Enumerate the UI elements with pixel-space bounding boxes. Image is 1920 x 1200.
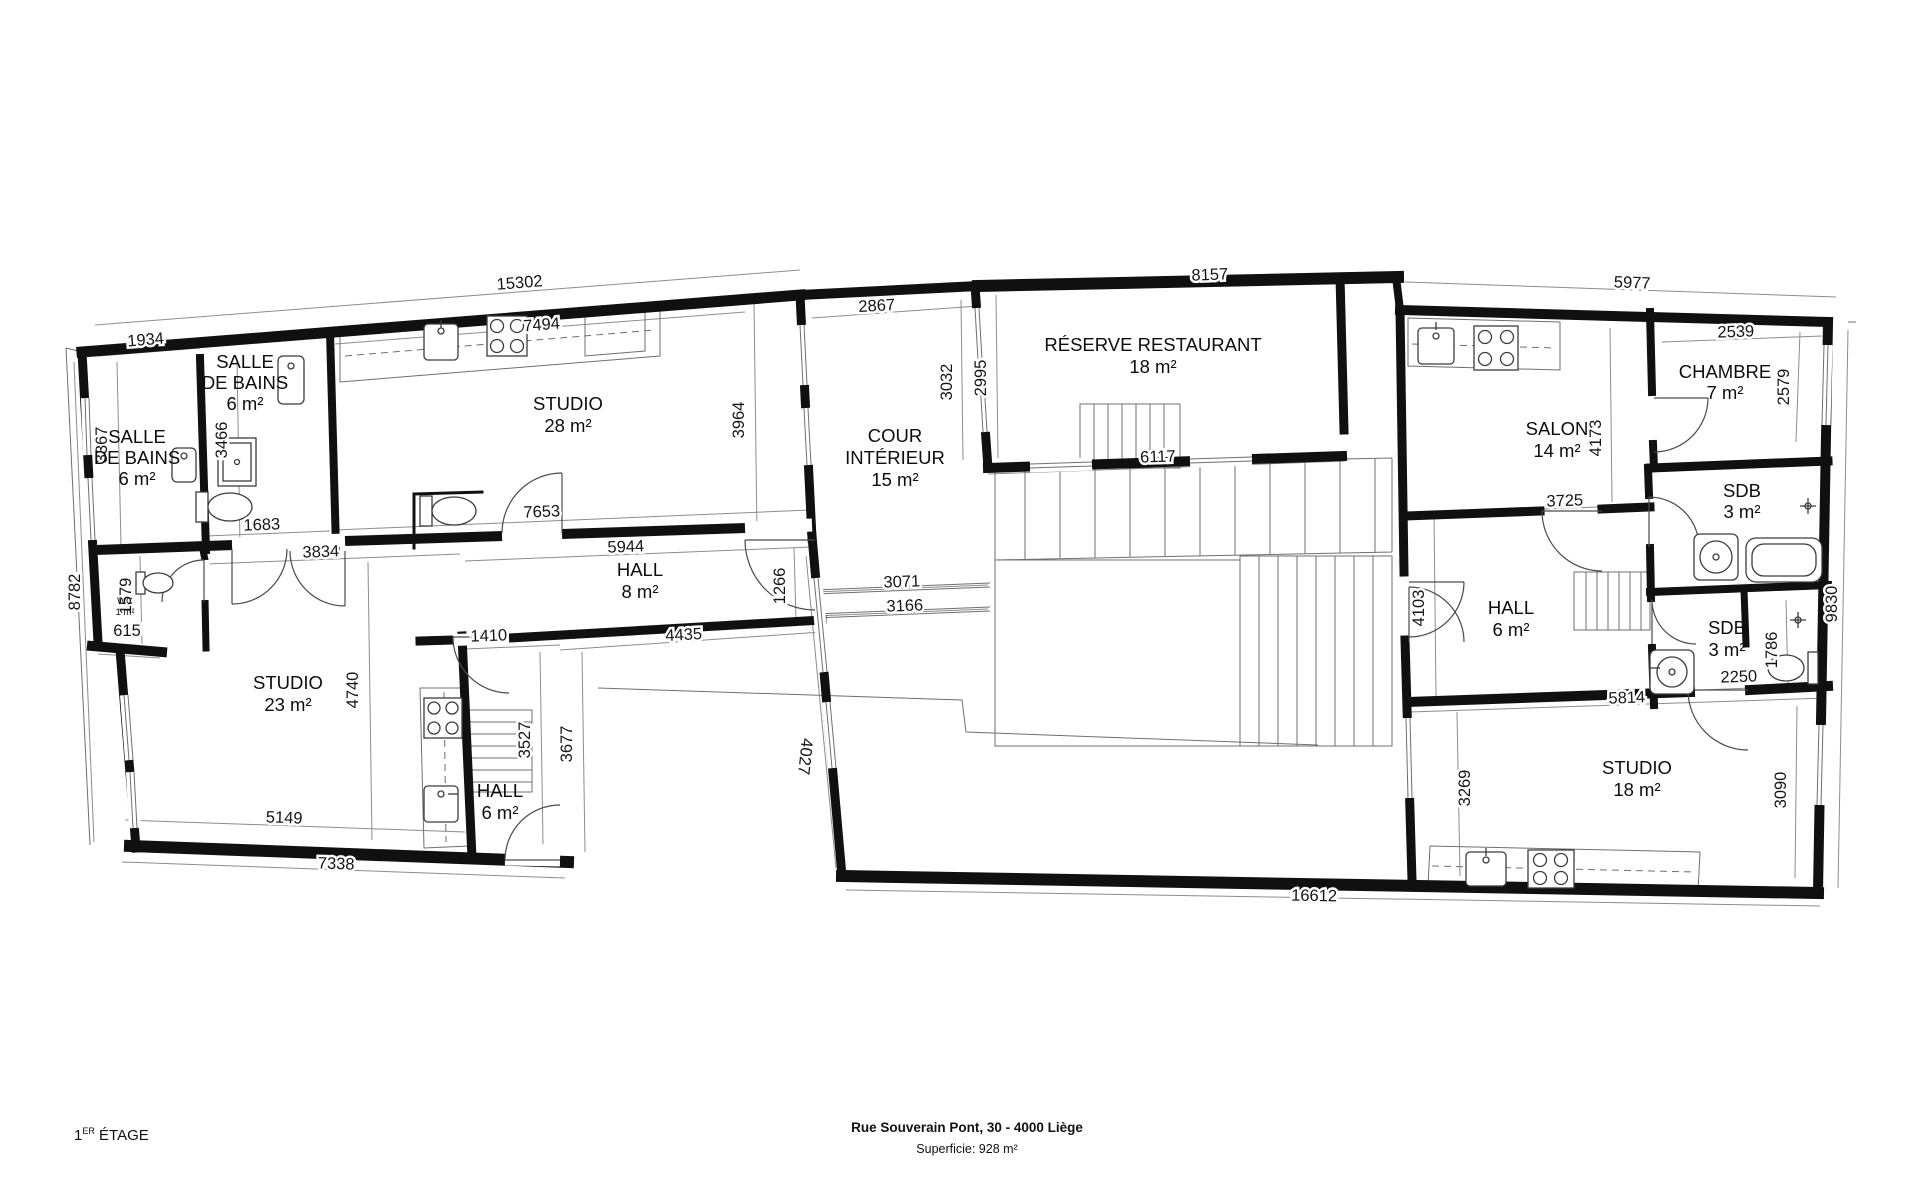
window xyxy=(85,398,91,455)
svg-text:6 m²: 6 m² xyxy=(1493,619,1530,640)
door-bath-left xyxy=(232,549,287,604)
dim-label: 5814 xyxy=(1608,688,1645,707)
dim-label: 3964 xyxy=(730,402,748,439)
stove-studio18 xyxy=(1528,850,1574,888)
dim-label: 4740 xyxy=(344,672,362,709)
dim-label: 4435 xyxy=(665,625,703,645)
door-studio18 xyxy=(1688,690,1748,750)
door-salon xyxy=(1542,511,1602,571)
svg-text:SALLE: SALLE xyxy=(108,426,166,447)
sink-studio28 xyxy=(424,320,458,360)
dim-label: 15302 xyxy=(496,272,543,294)
svg-text:14 m²: 14 m² xyxy=(1533,440,1580,461)
window xyxy=(800,325,807,385)
room-label-reserve-restaurant: RÉSERVE RESTAURANT 18 m² xyxy=(1044,334,1261,377)
stove-studio23 xyxy=(424,698,462,738)
svg-text:RÉSERVE RESTAURANT: RÉSERVE RESTAURANT xyxy=(1044,334,1261,355)
svg-text:SDB: SDB xyxy=(1708,617,1746,638)
svg-text:3 m²: 3 m² xyxy=(1709,639,1746,660)
dim-label: 3677 xyxy=(558,726,576,763)
dim-label: 3834 xyxy=(302,542,339,561)
svg-text:SALLE: SALLE xyxy=(216,351,274,372)
room-label-wc: WC 1 m² xyxy=(116,596,135,618)
window xyxy=(975,308,982,360)
svg-text:CHAMBRE: CHAMBRE xyxy=(1679,361,1772,382)
dim-label: 1786 xyxy=(1763,632,1781,669)
svg-text:18 m²: 18 m² xyxy=(1129,356,1176,377)
dim-label: 3527 xyxy=(516,722,534,759)
sink-studio23 xyxy=(424,786,458,822)
dim-label: 5149 xyxy=(266,808,303,827)
window xyxy=(804,408,811,465)
dim-label: 3090 xyxy=(1772,772,1790,809)
stove-studio28 xyxy=(487,316,527,356)
room-label-hall6-right: HALL 6 m² xyxy=(1488,597,1534,640)
svg-text:STUDIO: STUDIO xyxy=(533,393,603,414)
svg-text:HALL: HALL xyxy=(477,780,523,801)
svg-text:1 m²: 1 m² xyxy=(116,607,135,618)
toilet-nook xyxy=(420,496,476,526)
dim-label: 4173 xyxy=(1587,420,1605,457)
room-label-studio18: STUDIO 18 m² xyxy=(1602,757,1672,800)
dim-label: 4027 xyxy=(794,737,816,775)
bathtub-sdb-upper xyxy=(1746,538,1822,582)
window xyxy=(1030,462,1092,468)
svg-text:COUR: COUR xyxy=(868,425,922,446)
dim-label: 2995 xyxy=(972,360,990,397)
room-label-salle-de-bains-1: SALLE DE BAINS 6 m² xyxy=(202,351,288,414)
svg-text:3 m²: 3 m² xyxy=(1724,501,1761,522)
dim-label: 5944 xyxy=(607,537,644,556)
room-label-hall6-left: HALL 6 m² xyxy=(477,780,523,823)
room-label-salon: SALON 14 m² xyxy=(1526,418,1589,461)
dim-label: 9830 xyxy=(1823,586,1841,623)
room-label-sdb-lower: SDB 3 m² xyxy=(1708,617,1746,660)
sink-studio18 xyxy=(1466,848,1506,886)
faucet-sdb-upper xyxy=(1800,498,1816,514)
dim-label: 16612 xyxy=(1291,887,1337,906)
dim-label: 8157 xyxy=(1191,265,1228,284)
room-label-chambre: CHAMBRE 7 m² xyxy=(1679,361,1772,403)
dim-label: 615 xyxy=(113,622,141,640)
door-sdb-lower xyxy=(1652,600,1696,644)
room-label-hall8: HALL 8 m² xyxy=(617,559,663,602)
dim-label: 7338 xyxy=(318,854,355,873)
stair-landing xyxy=(995,560,1240,746)
svg-text:6 m²: 6 m² xyxy=(227,393,264,414)
dim-label: 7494 xyxy=(523,315,561,336)
window xyxy=(130,772,137,828)
stair-main-flight xyxy=(995,458,1392,560)
svg-text:HALL: HALL xyxy=(1488,597,1534,618)
svg-text:23 m²: 23 m² xyxy=(264,694,311,715)
window xyxy=(124,695,133,760)
svg-text:7 m²: 7 m² xyxy=(1707,382,1744,403)
dim-label: 3269 xyxy=(1456,770,1474,807)
window xyxy=(1190,457,1252,463)
floor-title: 1ER ÉTAGE xyxy=(74,1126,149,1144)
dim-label: 6117 xyxy=(1140,447,1176,466)
svg-text:STUDIO: STUDIO xyxy=(1602,757,1672,778)
window xyxy=(1817,725,1823,805)
dim-label: 3071 xyxy=(883,572,920,591)
window xyxy=(1822,345,1828,425)
dim-label: 1934 xyxy=(127,330,165,351)
window xyxy=(88,478,95,540)
address: Rue Souverain Pont, 30 - 4000 Liège xyxy=(851,1120,1083,1135)
dim-label: 3725 xyxy=(1546,491,1583,510)
svg-text:HALL: HALL xyxy=(617,559,663,580)
window xyxy=(826,702,836,768)
basin-sdb-lower xyxy=(1650,650,1694,694)
sink-salon xyxy=(1418,322,1454,364)
dim-label: 1266 xyxy=(771,568,789,605)
window xyxy=(1406,718,1412,798)
svg-text:DE BAINS: DE BAINS xyxy=(202,372,288,393)
room-label-cour-interieur: COUR INTÉRIEUR 15 m² xyxy=(845,425,945,490)
room-label-studio28: STUDIO 28 m² xyxy=(533,393,603,436)
room-label-studio23: STUDIO 23 m² xyxy=(253,672,323,715)
svg-text:SALON: SALON xyxy=(1526,418,1589,439)
door-chambre xyxy=(1654,398,1708,452)
dim-label: 3466 xyxy=(213,422,231,459)
basin-sdb-upper xyxy=(1694,534,1738,580)
stair-hall-right xyxy=(1574,572,1650,630)
dim-label: 1683 xyxy=(243,515,280,534)
svg-text:18 m²: 18 m² xyxy=(1613,779,1660,800)
svg-text:8 m²: 8 m² xyxy=(622,581,659,602)
room-label-sdb-upper: SDB 3 m² xyxy=(1723,480,1761,522)
stair-lower-flight xyxy=(1240,556,1392,746)
dim-label: 8782 xyxy=(66,574,84,611)
dim-label: 2867 xyxy=(858,296,896,316)
svg-text:15 m²: 15 m² xyxy=(871,469,918,490)
dim-label: 4103 xyxy=(1410,590,1428,627)
faucet-sdb-lower xyxy=(1790,612,1806,628)
svg-text:6 m²: 6 m² xyxy=(482,802,519,823)
dim-label: 2250 xyxy=(1720,667,1757,686)
windows xyxy=(85,308,1828,828)
dim-label: 7653 xyxy=(523,502,560,522)
dim-label: 5977 xyxy=(1614,273,1651,292)
toilet-wc xyxy=(136,572,173,594)
svg-text:WC: WC xyxy=(117,596,133,607)
dim-label: 2539 xyxy=(1717,322,1754,341)
dim-label: 3166 xyxy=(886,596,923,615)
svg-text:6 m²: 6 m² xyxy=(119,468,156,489)
floor-plan-drawing: 15302 1934 7494 2867 8157 5977 2539 2579… xyxy=(0,0,1920,1200)
dim-label: 2579 xyxy=(1775,369,1793,406)
svg-text:INTÉRIEUR: INTÉRIEUR xyxy=(845,447,945,468)
dim-label: 3032 xyxy=(938,364,956,401)
surface: Superficie: 928 m² xyxy=(916,1142,1017,1156)
svg-text:DE BAINS: DE BAINS xyxy=(94,447,180,468)
svg-text:SDB: SDB xyxy=(1723,480,1761,501)
svg-text:28 m²: 28 m² xyxy=(544,415,591,436)
dim-label: 1410 xyxy=(470,626,507,645)
stove-salon xyxy=(1474,326,1518,370)
door-sdb-upper xyxy=(1649,497,1699,547)
svg-text:STUDIO: STUDIO xyxy=(253,672,323,693)
